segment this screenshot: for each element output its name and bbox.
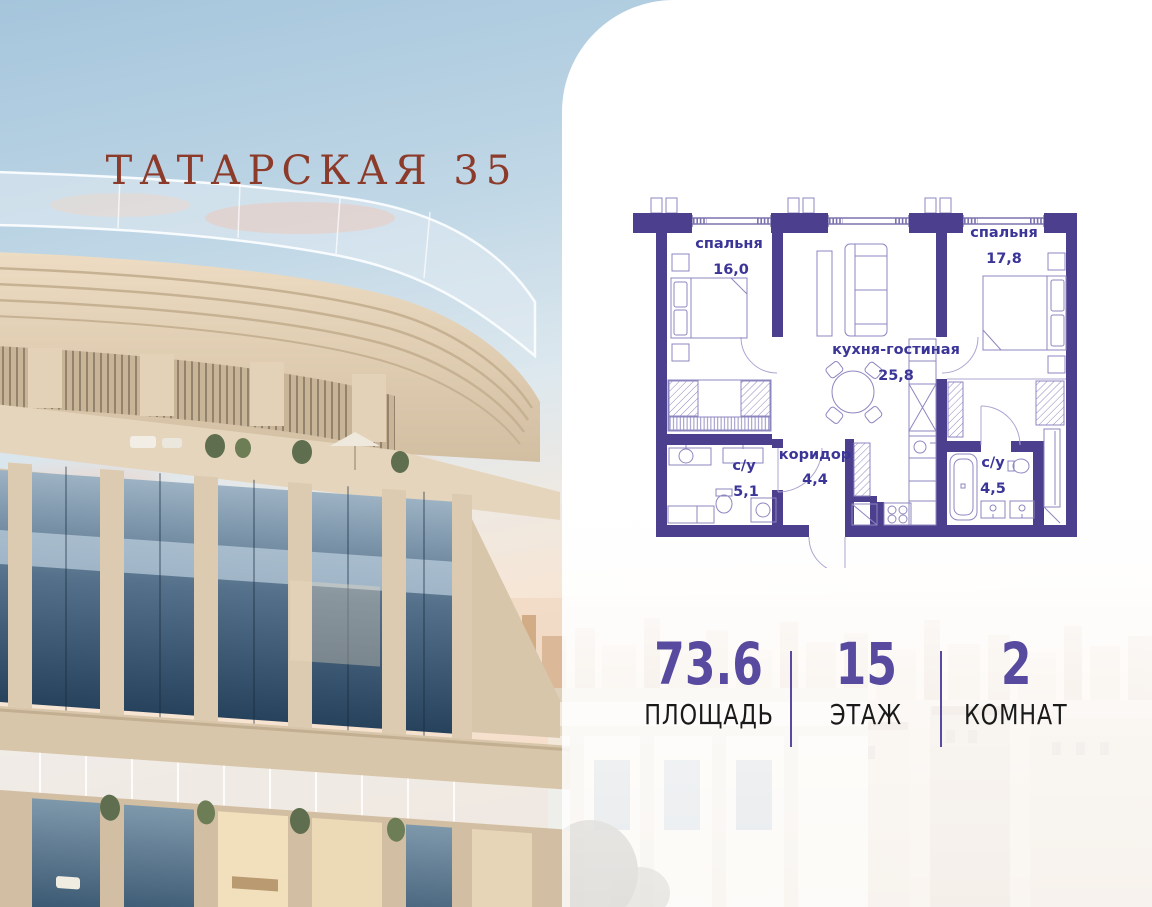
stats-row: 73.6 ПЛОЩАДЬ 15 ЭТАЖ 2 КОМНАТ [628,636,1090,754]
room-label-corridor: коридор 4,4 [779,447,851,488]
floor-plan: спальня 16,0 спальня 17,8 кухня-гостиная… [630,196,1088,568]
svg-text:с/у: с/у [732,458,756,474]
roof-unit-outlines [651,198,951,213]
project-title: ТАТАРСКАЯ 35 [58,148,566,194]
stat-area-value: 73.6 [655,636,764,692]
svg-text:5,1: 5,1 [733,484,759,500]
stat-area-label: ПЛОЩАДЬ [644,701,774,729]
listing-card: ТАТАРСКАЯ 35 [0,0,1152,907]
svg-text:17,8: 17,8 [986,251,1022,267]
room-label-bathroom-2: с/у 4,5 [980,455,1006,497]
svg-text:спальня: спальня [695,236,763,252]
svg-text:4,4: 4,4 [802,472,828,488]
stat-floor-value: 15 [835,636,896,692]
svg-text:с/у: с/у [981,455,1005,471]
room-label-bathroom-1: с/у 5,1 [732,458,759,500]
svg-text:кухня-гостиная: кухня-гостиная [832,342,960,358]
kitchen-living-furniture [817,244,936,525]
stat-rooms: 2 КОМНАТ [942,636,1090,754]
room-label-bedroom-2: спальня 17,8 [970,225,1038,267]
svg-text:25,8: 25,8 [878,368,914,384]
stat-floor-label: ЭТАЖ [830,701,902,729]
svg-text:4,5: 4,5 [980,481,1006,497]
bedroom-1-furniture [668,254,771,431]
stat-area: 73.6 ПЛОЩАДЬ [628,636,790,754]
svg-text:16,0: 16,0 [713,262,749,278]
stat-rooms-value: 2 [1001,636,1032,692]
bathroom-1-furniture [668,445,776,523]
room-label-kitchen-living: кухня-гостиная 25,8 [832,342,960,384]
svg-text:спальня: спальня [970,225,1038,241]
stat-floor: 15 ЭТАЖ [792,636,940,754]
bedroom-2-furniture [947,253,1066,523]
stat-rooms-label: КОМНАТ [964,701,1068,729]
svg-text:коридор: коридор [779,447,851,463]
room-label-bedroom-1: спальня 16,0 [695,236,763,278]
